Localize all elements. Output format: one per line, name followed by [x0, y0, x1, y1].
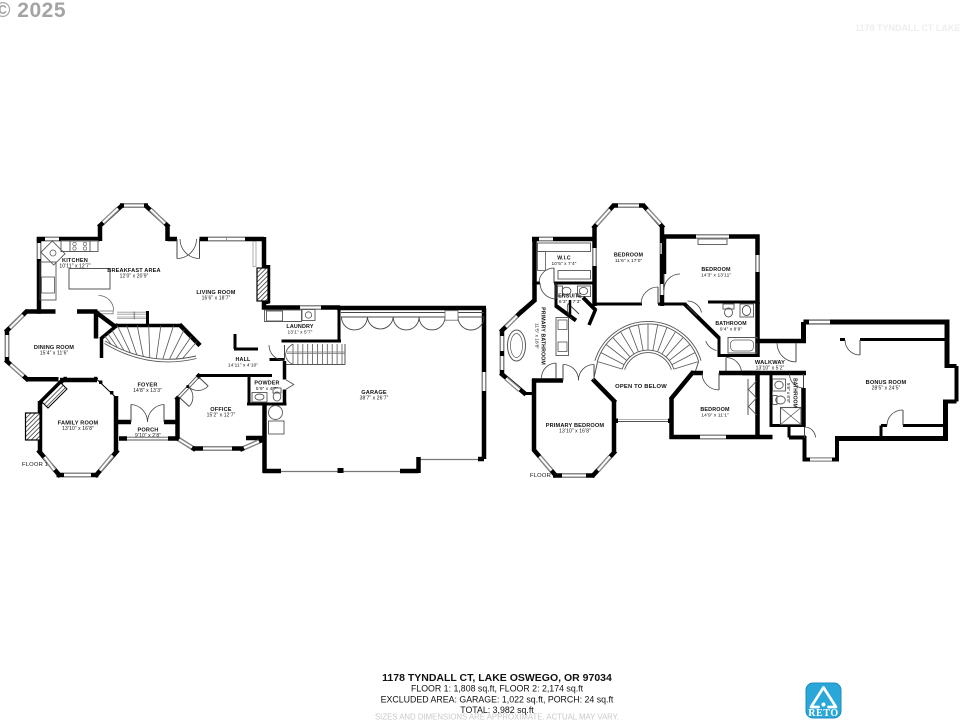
svg-text:BEDROOM: BEDROOM [700, 407, 730, 413]
svg-text:10’5” x 7’4”: 10’5” x 7’4” [552, 261, 577, 267]
svg-text:12’0” x 20’9”: 12’0” x 20’9” [120, 274, 149, 280]
svg-text:FLOOR 1: 1,808 sq.ft, FLOOR 2:: FLOOR 1: 1,808 sq.ft, FLOOR 2: 2,174 sq.… [411, 684, 584, 694]
svg-text:11’6” x 17’0”: 11’6” x 17’0” [615, 258, 643, 264]
svg-text:13’10” x 16’8”: 13’10” x 16’8” [559, 429, 591, 435]
svg-text:15’4” x 11’6”: 15’4” x 11’6” [40, 351, 69, 357]
svg-text:EXCLUDED AREA: GARAGE: 1,022 s: EXCLUDED AREA: GARAGE: 1,022 sq.ft, PORC… [381, 695, 614, 705]
svg-text:11’5” x 16’8”: 11’5” x 16’8” [534, 323, 540, 349]
svg-text:RETO: RETO [808, 708, 839, 719]
svg-text:FLOOR 2: FLOOR 2 [530, 473, 556, 479]
svg-text:FLOOR 1: FLOOR 1 [22, 462, 48, 468]
svg-text:1178 TYNDALL CT LAKE: 1178 TYNDALL CT LAKE [855, 23, 960, 33]
svg-text:5’9” x 4’7”: 5’9” x 4’7” [256, 386, 278, 392]
svg-text:14’9” x 11’1”: 14’9” x 11’1” [701, 413, 729, 419]
svg-text:HALL: HALL [236, 357, 252, 363]
svg-text:5’6” x 8’9”: 5’6” x 8’9” [786, 383, 791, 404]
svg-text:9’4” x 8’9”: 9’4” x 8’9” [720, 327, 742, 333]
svg-text:13’1” x 5’7”: 13’1” x 5’7” [288, 330, 313, 336]
svg-text:1178 TYNDALL CT, LAKE OSWEGO,: 1178 TYNDALL CT, LAKE OSWEGO, OR 97034 [382, 672, 612, 684]
svg-text:LAUNDRY: LAUNDRY [286, 324, 313, 330]
svg-text:13’10” x 16’8”: 13’10” x 16’8” [62, 426, 94, 432]
svg-text:BEDROOM: BEDROOM [614, 253, 644, 259]
svg-text:14’8” x 13’3”: 14’8” x 13’3” [133, 388, 162, 394]
svg-text:BATHROOM: BATHROOM [792, 378, 798, 408]
svg-text:BEDROOM: BEDROOM [701, 267, 731, 273]
svg-text:PRIMARY BATHROOM: PRIMARY BATHROOM [540, 307, 546, 365]
svg-text:OPEN TO BELOW: OPEN TO BELOW [615, 384, 667, 390]
svg-text:POWDER: POWDER [254, 381, 279, 387]
svg-text:9’10” x 2’8”: 9’10” x 2’8” [135, 433, 161, 439]
svg-text:SIZES AND DIMENSIONS ARE APPRO: SIZES AND DIMENSIONS ARE APPROXIMATE. AC… [375, 713, 619, 720]
svg-text:BATHROOM: BATHROOM [715, 321, 746, 327]
svg-text:15’2” x 12’7”: 15’2” x 12’7” [207, 413, 236, 419]
svg-text:16’6” x 18’7”: 16’6” x 18’7” [202, 296, 231, 302]
svg-text:13’10” x 5’2”: 13’10” x 5’2” [756, 366, 785, 372]
svg-text:38’7” x 26’7”: 38’7” x 26’7” [360, 396, 389, 402]
svg-text:W.I.C: W.I.C [557, 256, 571, 262]
svg-text:© 2025: © 2025 [0, 0, 66, 22]
svg-text:28’5” x 24’5”: 28’5” x 24’5” [872, 386, 901, 392]
svg-text:14’11” x 4’10”: 14’11” x 4’10” [228, 363, 258, 369]
svg-text:ENSUITE: ENSUITE [558, 294, 582, 300]
svg-text:14’3” x 13’11”: 14’3” x 13’11” [701, 273, 731, 279]
svg-text:10’11” x 12’7”: 10’11” x 12’7” [59, 264, 91, 270]
